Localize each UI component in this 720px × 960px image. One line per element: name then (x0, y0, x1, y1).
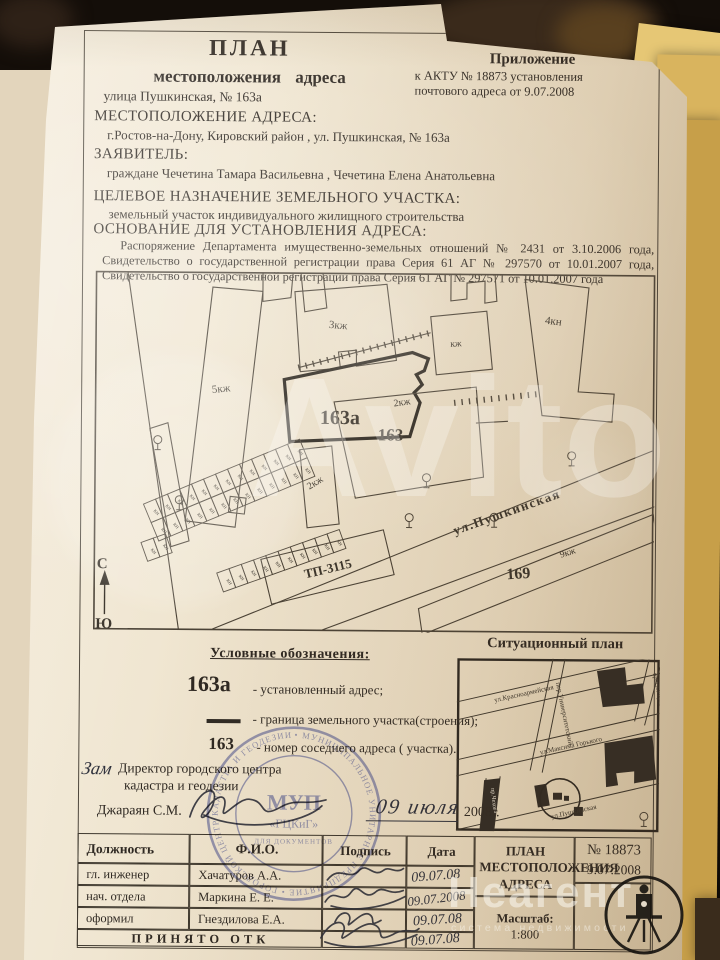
col-date: Дата (407, 844, 475, 861)
handwritten-prefix: Зам (80, 758, 113, 779)
svg-text:9кж: 9кж (559, 546, 578, 560)
row-name: Гнездилова Е.А. (198, 912, 285, 928)
location-value: г.Ростов-на-Дону, Кировский район , ул. … (107, 127, 450, 146)
row-role: оформил (86, 911, 134, 926)
svg-text:2кж: 2кж (305, 474, 325, 492)
svg-text:163: 163 (378, 425, 404, 444)
stamp-center-text: МУП (267, 789, 321, 814)
year-printed: 2008г. (464, 805, 500, 821)
building-strip (149, 423, 190, 547)
appendix-line2: почтового адреса от 9.07.2008 (414, 84, 574, 100)
doc-number: № 18873 (576, 842, 653, 860)
svg-text:163а: 163а (320, 407, 360, 429)
site-plan-map: кн (92, 270, 656, 634)
svg-text:3кж: 3кж (328, 319, 348, 332)
appendix-line1: к АКТУ № 18873 установления (415, 69, 583, 85)
garage-pair (141, 534, 172, 562)
director-name: Джараян С.М. (97, 803, 182, 820)
svg-text:Ю: Ю (95, 616, 112, 632)
svg-text:пер.Университетский: пер.Университетский (554, 682, 575, 747)
svg-text:4кн: 4кн (544, 315, 562, 329)
page-title: ПЛАН (180, 35, 320, 62)
location-label: МЕСТОПОЛОЖЕНИЕ АДРЕСА: (94, 108, 317, 127)
tp-substation: ТП-3115 (261, 530, 394, 604)
legend-mark-163a: 163а (187, 671, 231, 697)
document-paper: ПЛАН местоположения адреса Приложение к … (0, 0, 720, 960)
appendix-title: Приложение (490, 51, 576, 69)
applicant-value: граждане Чечетина Тамара Васильевна , Че… (107, 165, 495, 184)
signature-otk (311, 908, 431, 953)
svg-text:ул.Пушкинская: ул.Пушкинская (551, 803, 598, 821)
scale-label: Масштаб: (475, 911, 575, 927)
building-5kzh: 5кж (185, 287, 263, 528)
building-4kn: 4кн (524, 279, 615, 422)
svg-text:5кж: 5кж (211, 382, 231, 396)
svg-text:ул.Пушкинская: ул.Пушкинская (451, 486, 562, 538)
building-top-steps (451, 275, 497, 303)
page-subtitle: местоположения адреса (120, 66, 380, 88)
building-kzh: кж (430, 311, 493, 375)
svg-text:кж: кж (450, 339, 462, 350)
row-role: гл. инженер (86, 867, 149, 882)
svg-text:169: 169 (506, 565, 531, 583)
document-content: ПЛАН местоположения адреса Приложение к … (0, 0, 720, 960)
doc-date: 9.07.2008 (575, 862, 652, 879)
book-spine (695, 898, 720, 960)
svg-text:2кж: 2кж (393, 396, 411, 409)
svg-text:ТП-3115: ТП-3115 (303, 555, 354, 581)
round-stamp: • МУНИЦИПАЛЬНОЕ УНИТАРНОЕ ПРЕДПРИЯТИЕ • … (193, 713, 395, 915)
sitplan-title: Ситуационный план (487, 635, 623, 653)
col-role: Должность (87, 841, 155, 858)
svg-text:С: С (97, 556, 108, 572)
photo-background: ПЛАН местоположения адреса Приложение к … (0, 0, 720, 960)
legend-title: Условные обозначения: (210, 646, 370, 663)
stamp-center-text2: «ГЦКиГ» (269, 816, 318, 830)
table-plan-title: ПЛАН МЕСТОПОЛОЖЕНИЯ АДРЕСА (479, 843, 571, 892)
applicant-label: ЗАЯВИТЕЛЬ: (94, 146, 188, 164)
accepted-otk: ПРИНЯТО ОТК (78, 931, 323, 948)
street-line: улица Пушкинская, № 163а (103, 88, 262, 105)
stamp-small-text: ДЛЯ ДОКУМЕНТОВ (254, 837, 333, 846)
row-date: 09.07.08 (411, 867, 461, 887)
fence-hatch (454, 393, 542, 404)
row-date: 09.07.2008 (406, 888, 466, 911)
garage-row-double (143, 439, 314, 541)
compass: С Ю (95, 556, 113, 632)
row-role: нач. отдела (86, 889, 145, 904)
purpose-label: ЦЕЛЕВОЕ НАЗНАЧЕНИЕ ЗЕМЕЛЬНОГО УЧАСТКА: (94, 188, 461, 208)
scale-value: 1:800 (475, 927, 575, 943)
legend-text-1: - установленный адрес; (253, 681, 383, 698)
